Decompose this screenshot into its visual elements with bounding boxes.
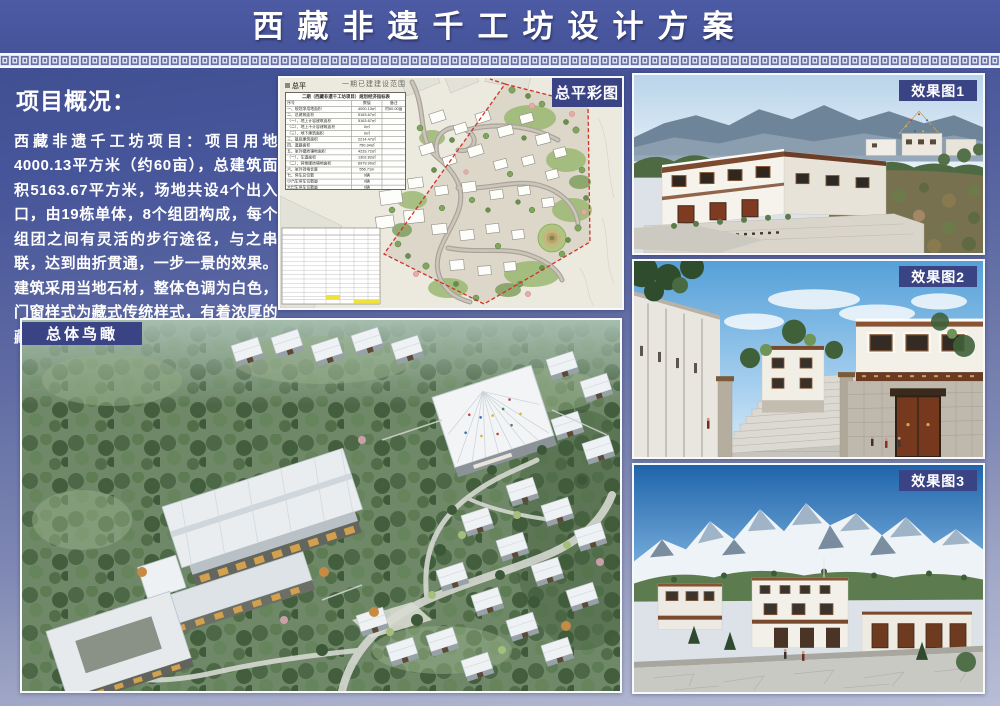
overview-body: 西藏非遗千工坊项目：项目用地4000.13平方米（约60亩），总建筑面积5163… bbox=[14, 130, 278, 350]
site-plan-panel: 总平 一期已建建设范围 二期（西藏非遗千工坊项目）规划经济指标表 序号 数值 备… bbox=[278, 76, 624, 310]
indicator-table-row: 六、室外挡墙长度556.71m bbox=[286, 167, 406, 173]
decorative-border-strip bbox=[0, 53, 1000, 68]
fret-pattern-icon bbox=[0, 55, 1000, 66]
plan-corner-mark: 总平 bbox=[285, 81, 306, 91]
render3-image bbox=[634, 465, 983, 692]
indicator-table-row: 四、道路面积750.34㎡ bbox=[286, 143, 406, 149]
indicator-table-row: （一）、车道面积1302.82㎡ bbox=[286, 155, 406, 161]
indicator-table-row: 三、基底建筑面积2214.47㎡ bbox=[286, 136, 406, 142]
indicator-table-row: （一）、地上计容建筑面积5163.67㎡ bbox=[286, 118, 406, 124]
page-title: 西藏非遗千工坊设计方案 bbox=[0, 0, 1000, 53]
aerial-panel: 总体鸟瞰 bbox=[20, 318, 622, 693]
indicator-table-row: （三）、地下建筑面积0㎡ bbox=[286, 130, 406, 136]
render3-label: 效果图3 bbox=[899, 470, 977, 491]
indicator-table-row: 一、规划净用地面积4000.13㎡约60.00亩 bbox=[286, 106, 406, 112]
design-poster-board: 西藏非遗千工坊设计方案 项目概况： 西藏非遗千工坊项目：项目用地4000.13平… bbox=[0, 0, 1000, 706]
render2-image bbox=[634, 261, 983, 457]
indicator-table-title: 二期（西藏非遗千工坊项目）规划经济指标表 bbox=[286, 93, 406, 100]
aerial-image bbox=[22, 320, 620, 691]
overview-heading: 项目概况： bbox=[16, 82, 278, 116]
render2-panel: 效果图2 bbox=[632, 259, 985, 459]
render3-panel: 效果图3 bbox=[632, 463, 985, 694]
project-overview: 项目概况： 西藏非遗千工坊项目：项目用地4000.13平方米（约60亩），总建筑… bbox=[14, 82, 278, 350]
indicator-table-row: （二）、地上不计容建筑面积0㎡ bbox=[286, 124, 406, 130]
indicator-table-row: （二）、其他硬质铺地面积6979.90㎡ bbox=[286, 161, 406, 167]
aerial-label: 总体鸟瞰 bbox=[22, 322, 142, 345]
plan-top-note: 一期已建建设范围 bbox=[342, 79, 406, 89]
render2-label: 效果图2 bbox=[899, 266, 977, 287]
title-bar: 西藏非遗千工坊设计方案 bbox=[0, 0, 1000, 53]
legend-square-icon bbox=[285, 83, 290, 88]
indicator-table-row: 七、停车总位数0辆 bbox=[286, 173, 406, 179]
indicator-table-row: 小汽车停车位数量0辆 bbox=[286, 179, 406, 185]
indicator-table-row: 大巴车停车位数量0辆 bbox=[286, 185, 406, 190]
render1-image bbox=[634, 75, 983, 253]
site-plan-label: 总平彩图 bbox=[552, 78, 622, 107]
indicator-table-row: 二、总建筑面积5163.67㎡ bbox=[286, 112, 406, 118]
indicator-table-rows: 一、规划净用地面积4000.13㎡约60.00亩二、总建筑面积5163.67㎡（… bbox=[286, 106, 406, 190]
indicator-table-row: 五、室外硬质铺地面积4233.72㎡ bbox=[286, 149, 406, 155]
indicator-table: 二期（西藏非遗千工坊项目）规划经济指标表 序号 数值 备注 一、规划净用地面积4… bbox=[285, 92, 406, 190]
indicator-table-header: 序号 数值 备注 bbox=[286, 100, 406, 106]
render1-label: 效果图1 bbox=[899, 80, 977, 101]
render1-panel: 效果图1 bbox=[632, 73, 985, 255]
